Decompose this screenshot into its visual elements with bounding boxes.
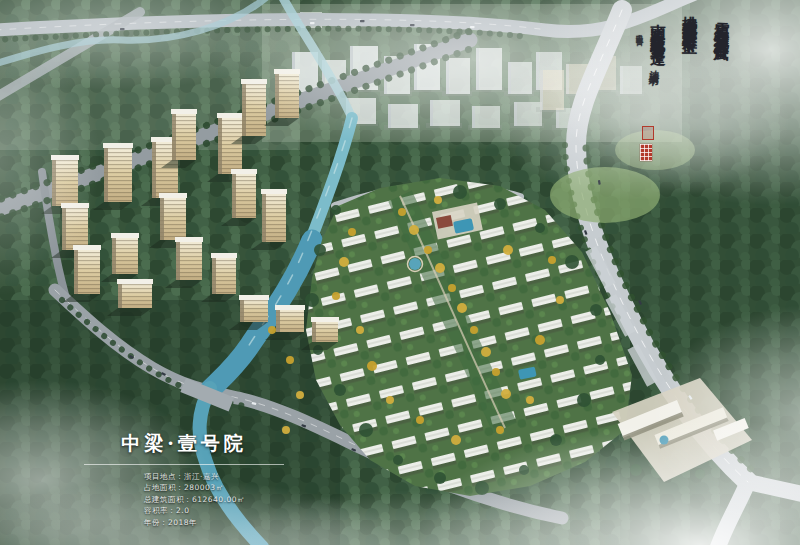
project-info-line: 总建筑面积：612640.00㎡	[144, 494, 284, 505]
poem-column-1: 雲想衣裳花想容春風	[714, 10, 730, 37]
project-info-line: 占地面积：280003㎡	[144, 482, 284, 493]
red-outline-seal-icon	[642, 126, 654, 140]
project-name: 中梁·壹号院	[84, 431, 284, 457]
masterplan-rendering: 雲想衣裳花想容春風 拂檻露華濃若非群玉 山頭見會向瑤臺月下逢 壬申年春日 沈鸿康…	[0, 0, 800, 545]
project-info-list: 项目地点：浙江·嘉兴 占地面积：280003㎡ 总建筑面积：612640.00㎡…	[84, 471, 284, 528]
signature-name: 沈鸿康书	[648, 62, 658, 70]
poem-column-2: 拂檻露華濃若非群玉	[682, 4, 697, 31]
project-info-line: 容积率：2.0	[144, 505, 284, 516]
title-divider	[84, 464, 284, 465]
red-solid-seal-icon	[640, 144, 652, 161]
poem-column-3: 山頭見會向瑤臺月下逢	[650, 12, 665, 42]
project-info-line: 年份：2018年	[144, 517, 284, 528]
signature-date: 壬申年春日	[636, 28, 643, 36]
project-title-block: 中梁·壹号院 项目地点：浙江·嘉兴 占地面积：280003㎡ 总建筑面积：612…	[84, 431, 284, 528]
project-info-line: 项目地点：浙江·嘉兴	[144, 471, 284, 482]
